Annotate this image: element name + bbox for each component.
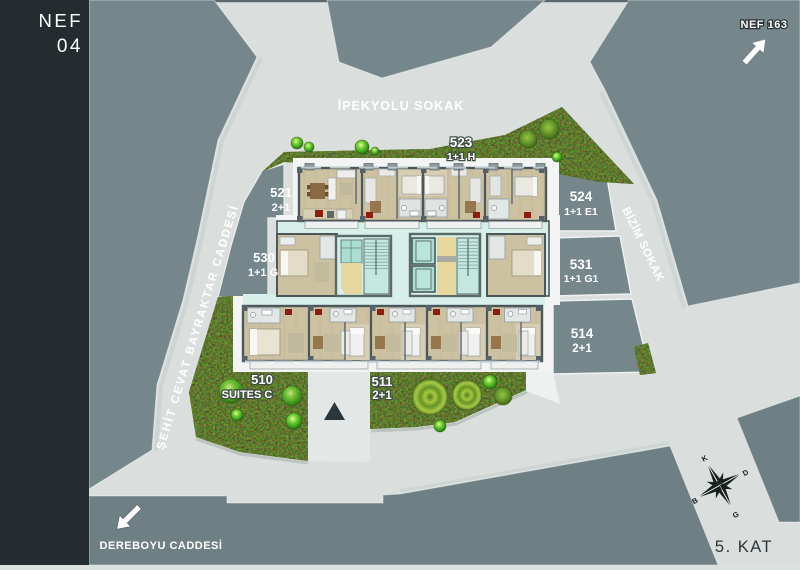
svg-text:1+1 G1: 1+1 G1 [564, 273, 599, 285]
svg-text:521: 521 [270, 185, 292, 200]
svg-text:531: 531 [570, 257, 593, 272]
svg-text:DEREBOYU CADDESİ: DEREBOYU CADDESİ [100, 539, 223, 552]
svg-text:530: 530 [253, 250, 275, 265]
svg-text:511: 511 [372, 374, 393, 389]
svg-text:1+1 G: 1+1 G [248, 267, 278, 279]
svg-text:1+1 E1: 1+1 E1 [564, 206, 598, 218]
svg-text:SUITES C: SUITES C [222, 389, 273, 401]
svg-text:510: 510 [251, 372, 273, 387]
svg-text:2+1: 2+1 [572, 343, 592, 355]
svg-text:524: 524 [570, 189, 593, 204]
svg-text:NEF: NEF [39, 10, 84, 31]
svg-text:2+1: 2+1 [272, 202, 291, 214]
svg-text:523: 523 [450, 135, 473, 150]
svg-text:1+1 H: 1+1 H [447, 151, 475, 163]
svg-text:04: 04 [57, 36, 83, 57]
svg-text:5. KAT: 5. KAT [715, 538, 773, 556]
svg-text:NEF 163: NEF 163 [741, 19, 788, 31]
svg-text:İPEKYOLU SOKAK: İPEKYOLU SOKAK [338, 98, 465, 113]
svg-text:514: 514 [571, 326, 594, 341]
svg-text:2+1: 2+1 [372, 390, 392, 402]
